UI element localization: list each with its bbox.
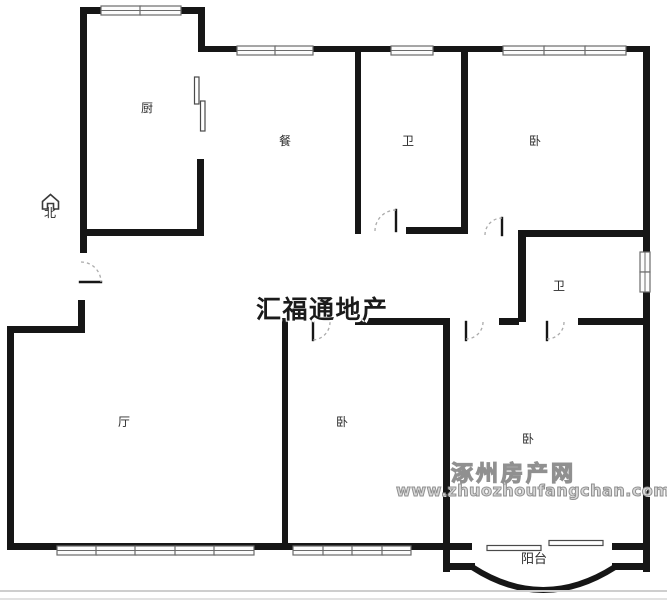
north-label: 北 — [44, 207, 56, 219]
room-label-living: 厅 — [118, 416, 130, 428]
door-arc — [466, 322, 483, 339]
sliding-door-panel — [487, 546, 541, 551]
sliding-door-panel — [195, 77, 200, 104]
floor-plan: 北 厨 餐 卫 卧 卫 厅 卧 卧 阳台 汇福通地产 涿州房产网 www.zhu… — [0, 0, 667, 600]
room-label-bath-mid: 卫 — [553, 280, 565, 292]
wall — [499, 318, 519, 325]
wall — [406, 227, 468, 234]
door-arc — [485, 218, 502, 235]
wall — [198, 7, 205, 52]
room-label-bedroom-bottom-right: 卧 — [522, 433, 534, 445]
room-label-bedroom-mid: 卧 — [336, 416, 348, 428]
watermark-site-url: www.zhuozhoufangchan.com — [396, 481, 667, 500]
wall — [7, 326, 85, 333]
wall — [80, 7, 87, 253]
wall — [443, 318, 450, 572]
wall — [282, 318, 288, 550]
scan-artifact-line — [0, 590, 667, 592]
wall — [518, 230, 526, 322]
wall — [80, 229, 204, 236]
wall — [7, 326, 14, 550]
balcony-bay-wall — [472, 567, 615, 590]
room-label-dining: 餐 — [279, 135, 291, 147]
room-label-kitchen: 厨 — [141, 102, 153, 114]
door-arc — [547, 322, 564, 339]
room-label-balcony: 阳台 — [521, 553, 547, 566]
wall — [578, 318, 650, 325]
wall — [612, 563, 643, 570]
room-label-bath-top: 卫 — [402, 135, 414, 147]
sliding-door-panel — [201, 101, 206, 131]
wall — [355, 52, 361, 234]
room-label-bedroom-top-right: 卧 — [529, 135, 541, 147]
door-arc — [375, 210, 396, 231]
sliding-door-panel — [549, 541, 603, 546]
wall — [197, 159, 204, 236]
wall — [461, 52, 468, 234]
watermark-agency: 汇福通地产 — [256, 290, 389, 326]
wall — [518, 230, 650, 237]
door-arc — [81, 262, 101, 282]
wall — [612, 543, 650, 550]
